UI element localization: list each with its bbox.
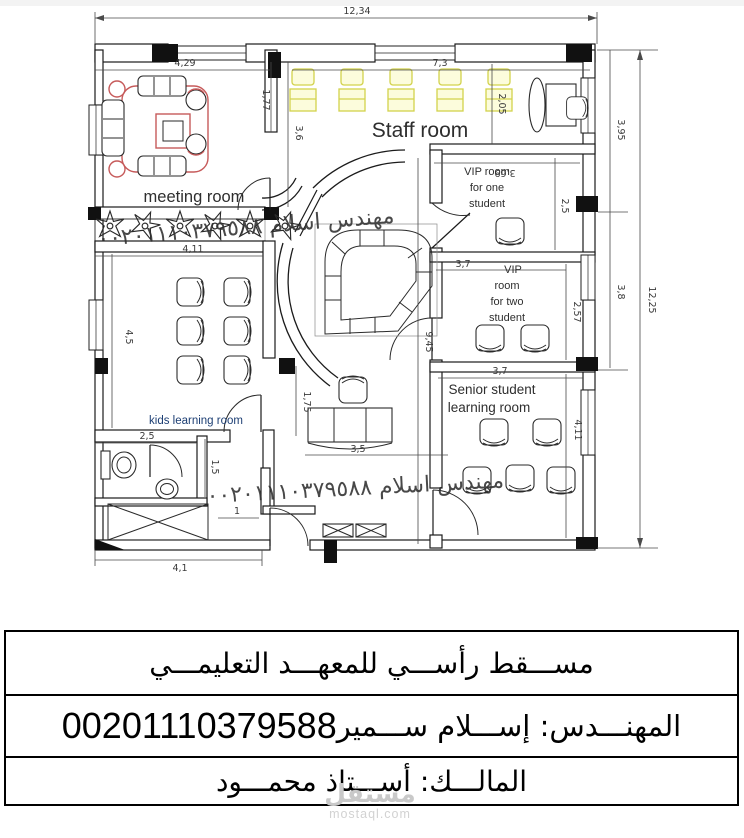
dim-label: 1,77 <box>260 89 271 110</box>
dim-label: 12,34 <box>343 6 370 17</box>
vip2-label-line1: VIP <box>504 264 522 276</box>
stairs-area <box>108 504 386 540</box>
mostaql-domain-text: mostaql.com <box>320 807 420 821</box>
project-title: مســـقط رأســـي للمعهـــد التعليمـــي <box>149 647 594 680</box>
dim-label: 7,3 <box>432 58 447 69</box>
engineer-phone: 00201110379588 <box>62 705 337 747</box>
dim-label: 4,11 <box>572 419 583 440</box>
dim-label: 4,29 <box>174 58 195 69</box>
dim-label: 1,5 <box>209 459 220 474</box>
dim-label: 3,8 <box>615 284 626 299</box>
admin-desk <box>308 376 392 449</box>
vip1-label-line3: student <box>469 198 505 210</box>
dim-label: 3,6 <box>293 125 304 140</box>
title-block-row-owner: المالـــك: أســـتاذ محمـــود <box>6 758 737 804</box>
floor-plan-drawing: 12,34 4,29 7,3 1,77 2,05 3,6 3,69 2,5 3,… <box>0 0 744 626</box>
title-block-row-engineer: المهنـــدس: إســـلام ســـمير002011103795… <box>6 696 737 758</box>
dim-label: 3,7 <box>455 259 470 270</box>
curved-hall-walls <box>262 150 405 386</box>
dim-label: 3,5 <box>350 444 365 455</box>
dim-label: 3,95 <box>615 119 626 140</box>
dim-label: 4,11 <box>182 244 203 255</box>
dim-label: 2,05 <box>496 93 507 114</box>
dim-label: 2,57 <box>571 301 582 322</box>
senior-room-label-line1: Senior student <box>448 382 535 397</box>
vip1-chair <box>496 218 524 245</box>
dim-label: 3,7 <box>492 366 507 377</box>
vip2-label-line3: for two <box>490 296 523 308</box>
vip2-label-line4: student <box>489 312 525 324</box>
vip1-label-line2: for one <box>470 182 504 194</box>
owner-name: المالـــك: أســـتاذ محمـــود <box>216 765 527 798</box>
meeting-room-furniture <box>102 76 208 177</box>
title-block-row-project: مســـقط رأســـي للمعهـــد التعليمـــي <box>6 632 737 696</box>
staff-room-label: Staff room <box>372 119 469 142</box>
vip2-chairs <box>476 325 549 352</box>
title-block: مســـقط رأســـي للمعهـــد التعليمـــي ال… <box>4 630 739 806</box>
meeting-room-label: meeting room <box>144 188 245 206</box>
dim-label: 2,5 <box>559 198 570 213</box>
engineer-name: المهنـــدس: إســـلام ســـمير <box>337 709 682 743</box>
dim-label: 9,45 <box>423 331 434 352</box>
kids-room-chairs <box>177 278 251 384</box>
senior-room-label-line2: learning room <box>448 400 531 415</box>
kids-room-label: kids learning room <box>149 415 243 427</box>
dim-label: 4,1 <box>172 563 187 574</box>
floor-plan-sheet: 12,34 4,29 7,3 1,77 2,05 3,6 3,69 2,5 3,… <box>0 0 744 838</box>
vip2-label-line2: room <box>494 280 519 292</box>
dim-label: 1 <box>234 506 240 517</box>
vip1-label-line1: VIP room <box>464 166 510 178</box>
engineer-watermark-horizontal: مهندس اسلام ٠٠٢٠١١١٠٣٧٩٥٨٨ <box>206 468 505 509</box>
reception-desk <box>315 224 437 336</box>
toilet-fixtures <box>101 451 178 499</box>
dim-label: 4,5 <box>123 329 134 344</box>
dim-label: 12,25 <box>646 286 657 313</box>
dim-label: 1,75 <box>301 391 312 412</box>
dim-label: 2,5 <box>139 431 154 442</box>
